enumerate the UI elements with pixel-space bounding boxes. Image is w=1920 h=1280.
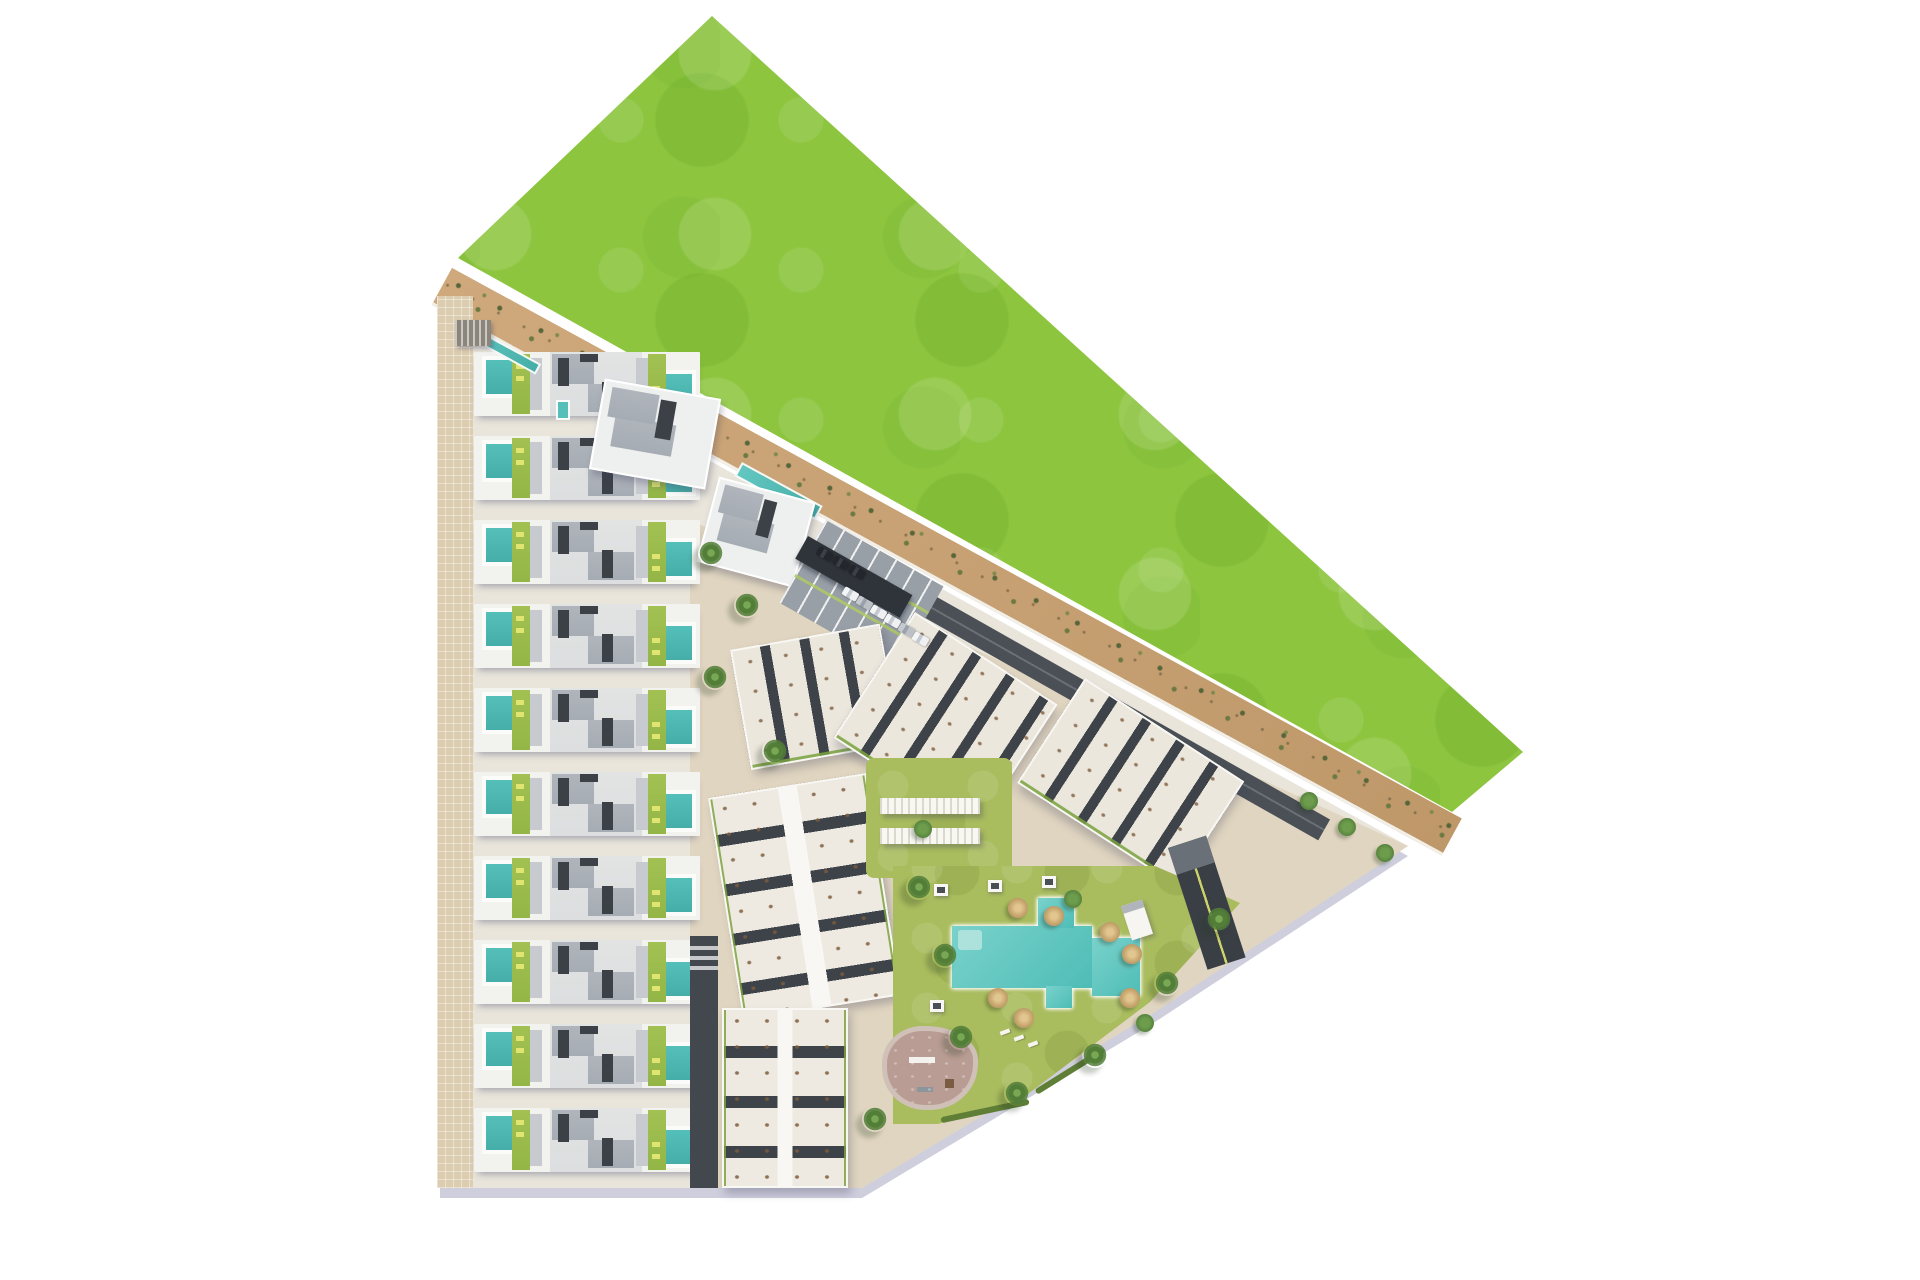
garden-tree	[914, 820, 932, 838]
straw-umbrella	[1044, 906, 1064, 926]
palm-tree	[1082, 1042, 1108, 1068]
straw-umbrella	[1014, 1008, 1034, 1028]
pool-cabana	[930, 1000, 944, 1012]
palm-tree	[762, 738, 788, 764]
palm-tree	[948, 1024, 974, 1050]
garden-tree	[1064, 890, 1082, 908]
pool-cabana	[1042, 876, 1056, 888]
straw-umbrella	[1008, 898, 1028, 918]
palm-tree	[698, 540, 724, 566]
straw-umbrella	[988, 988, 1008, 1008]
pool-cabana	[934, 884, 948, 896]
palm-tree	[906, 874, 932, 900]
palm-tree	[734, 592, 760, 618]
site-plan-rendering	[0, 0, 1920, 1280]
palm-tree	[932, 942, 958, 968]
garden-tree	[1338, 818, 1356, 836]
palm-tree	[1004, 1080, 1030, 1106]
pool-cabana	[988, 880, 1002, 892]
straw-umbrella	[1100, 922, 1120, 942]
garden-tree	[1376, 844, 1394, 862]
palm-tree	[1154, 970, 1180, 996]
palm-tree	[1206, 906, 1232, 932]
palm-tree	[702, 664, 728, 690]
pool-steps	[958, 930, 982, 950]
garden-tree	[1300, 792, 1318, 810]
straw-umbrella	[1122, 944, 1142, 964]
straw-umbrella	[1120, 988, 1140, 1008]
palm-tree	[862, 1106, 888, 1132]
garden-tree	[1136, 1014, 1154, 1032]
